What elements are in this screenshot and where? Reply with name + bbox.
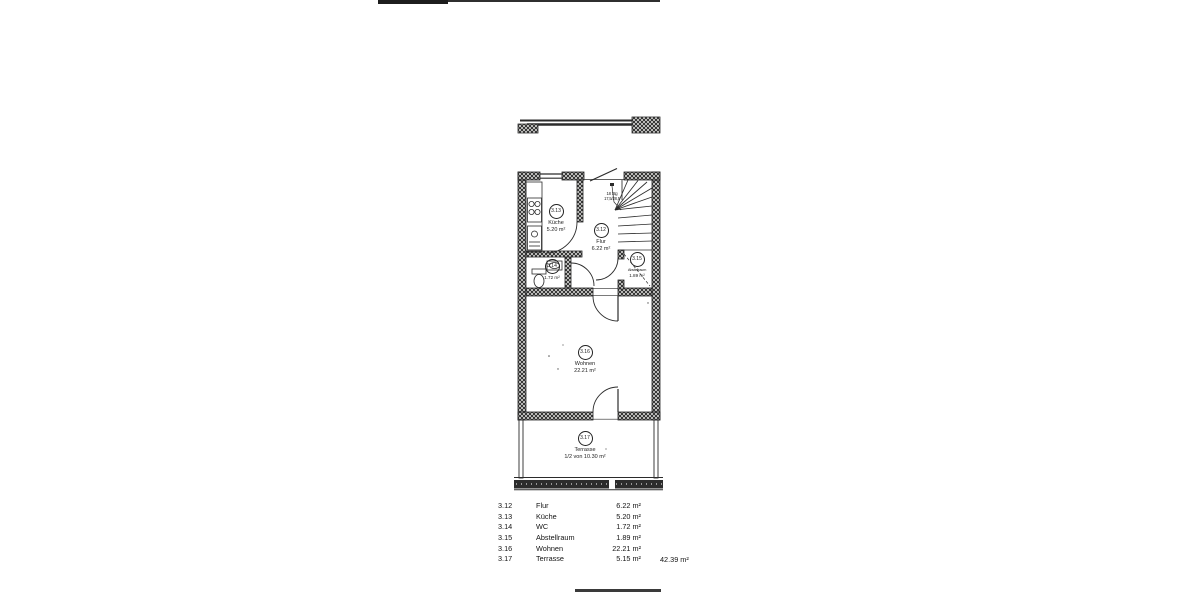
- scan-bottom-line: [575, 589, 661, 592]
- room-number-circle: 3.15: [630, 252, 645, 267]
- room-label-wc: 3.14 1.72 m²: [541, 259, 563, 281]
- legend-room-id: 3.12: [498, 501, 536, 512]
- room-number-circle: 3.16: [578, 345, 593, 360]
- legend-total-area: 42.39 m²: [660, 555, 689, 564]
- legend-room-id: 3.14: [498, 522, 536, 533]
- stair-walkline-start: [610, 183, 614, 186]
- entrance-door: [584, 169, 624, 182]
- legend-room-name: Abstellraum: [536, 533, 602, 544]
- room-label-terrasse: 3.17 Terrasse 1/2 von 10.30 m²: [555, 431, 615, 461]
- wc-door-arc: [571, 263, 594, 286]
- livingroom-door-arc: [593, 296, 618, 321]
- legend-room-name: WC: [536, 522, 602, 533]
- room-label-kueche: 3.13 Küche 5.20 m²: [532, 204, 580, 234]
- legend-room-name: Terrasse: [536, 554, 602, 565]
- legend-room-name: Küche: [536, 512, 602, 523]
- legend-room-area: 1.72 m²: [602, 522, 641, 533]
- window-north: [540, 174, 562, 178]
- legend-room-name: Flur: [536, 501, 602, 512]
- room-label-abstellraum: 3.15 Abstellraum 1.89 m²: [622, 252, 652, 279]
- stairs-annotation: 18 Stg 17,5/28,5: [601, 192, 623, 202]
- room-label-flur: 3.12 Flur 6.22 m²: [578, 223, 624, 253]
- legend-row: 3.15 Abstellraum 1.89 m²: [498, 533, 648, 544]
- room-number-circle: 3.13: [549, 204, 564, 219]
- legend-room-id: 3.17: [498, 554, 536, 565]
- legend-row: 3.14 WC 1.72 m²: [498, 522, 648, 533]
- legend-row: 3.16 Wohnen 22.21 m²: [498, 544, 648, 555]
- legend-row: 3.13 Küche 5.20 m²: [498, 512, 648, 523]
- room-label-wohnen: 3.16 Wohnen 22.21 m²: [560, 345, 610, 375]
- legend-row: 3.12 Flur 6.22 m²: [498, 501, 648, 512]
- room-number-circle: 3.14: [545, 259, 560, 274]
- terrace-door-arc: [593, 387, 618, 412]
- legend-room-id: 3.16: [498, 544, 536, 555]
- legend-room-name: Wohnen: [536, 544, 602, 555]
- legend-room-area: 5.20 m²: [602, 512, 641, 523]
- scan-top-line-thick: [378, 0, 448, 4]
- scanned-floorplan-page: 3.13 Küche 5.20 m² 3.12 Flur 6.22 m² 3.1…: [0, 0, 1200, 600]
- legend-room-id: 3.13: [498, 512, 536, 523]
- legend-room-area: 1.89 m²: [602, 533, 641, 544]
- upper-storey-fragment: [518, 117, 660, 133]
- legend-room-area: 22.21 m²: [602, 544, 641, 555]
- room-legend: 3.12 Flur 6.22 m² 3.13 Küche 5.20 m² 3.1…: [498, 501, 648, 565]
- legend-room-area: 5.15 m²: [602, 554, 641, 565]
- legend-room-area: 6.22 m²: [602, 501, 641, 512]
- room-number-circle: 3.17: [578, 431, 593, 446]
- legend-room-id: 3.15: [498, 533, 536, 544]
- storage-door-arc: [596, 258, 618, 280]
- legend-row: 3.17 Terrasse 5.15 m²: [498, 554, 648, 565]
- room-number-circle: 3.12: [594, 223, 609, 238]
- scan-specks: [548, 302, 649, 449]
